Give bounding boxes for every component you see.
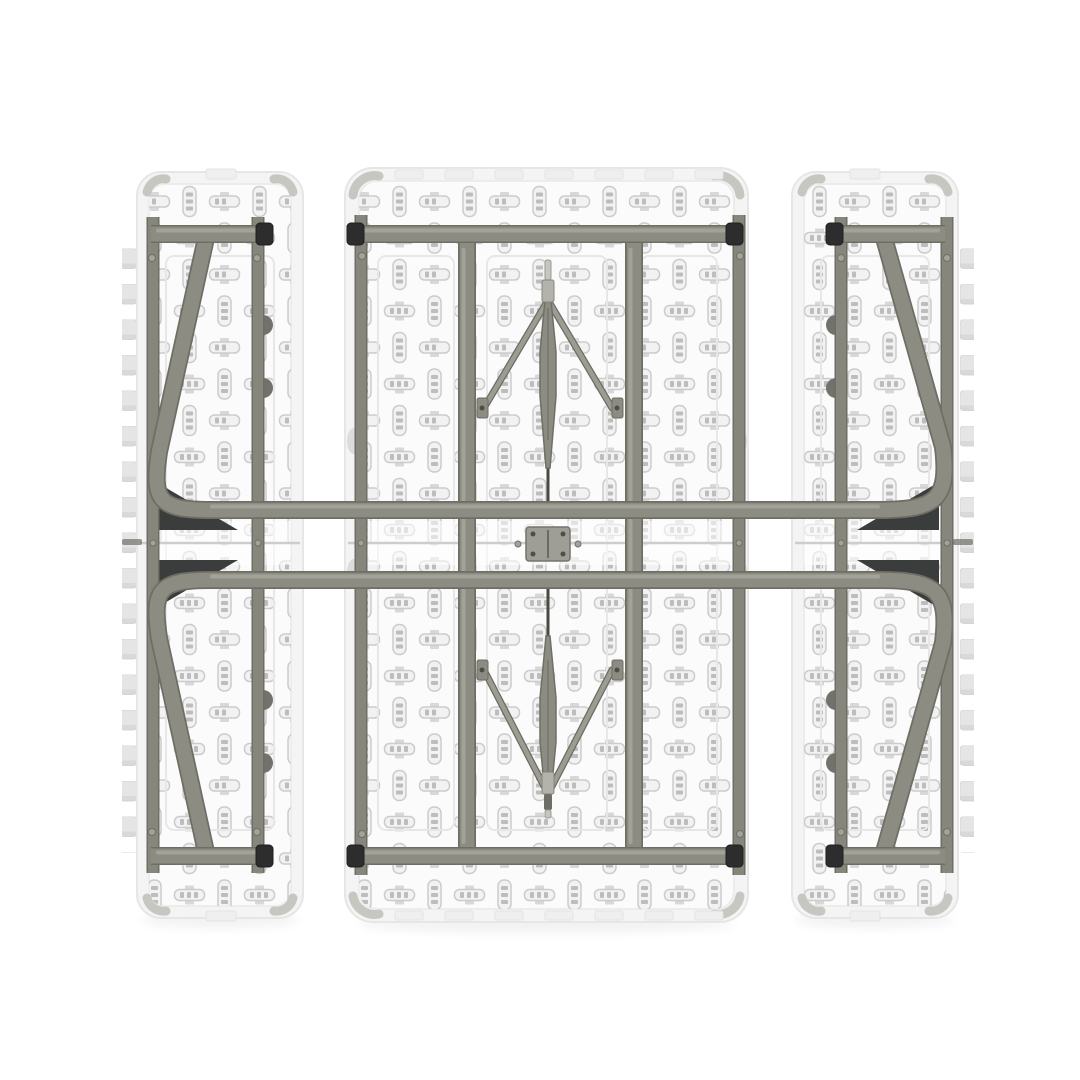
upper-leg-hub [542, 280, 554, 302]
left-bench-seam-tick [122, 539, 142, 545]
left-bench-edge-notch [206, 169, 236, 179]
lower-leg-foot [544, 794, 552, 810]
folded-picnic-table-image: Top-down view of a white folded picnic t… [0, 0, 1080, 1080]
right-bench-edge-notch [850, 911, 880, 921]
right-bench-edge-notch [850, 169, 880, 179]
lower-leg-tip [545, 810, 551, 818]
product-photo: Top-down view of a white folded picnic t… [0, 0, 1080, 1080]
left-bench-edge-notch [206, 911, 236, 921]
upper-leg-tip [545, 260, 551, 280]
lower-leg-hub [542, 772, 554, 794]
right-bench-seam-tick [953, 539, 973, 545]
